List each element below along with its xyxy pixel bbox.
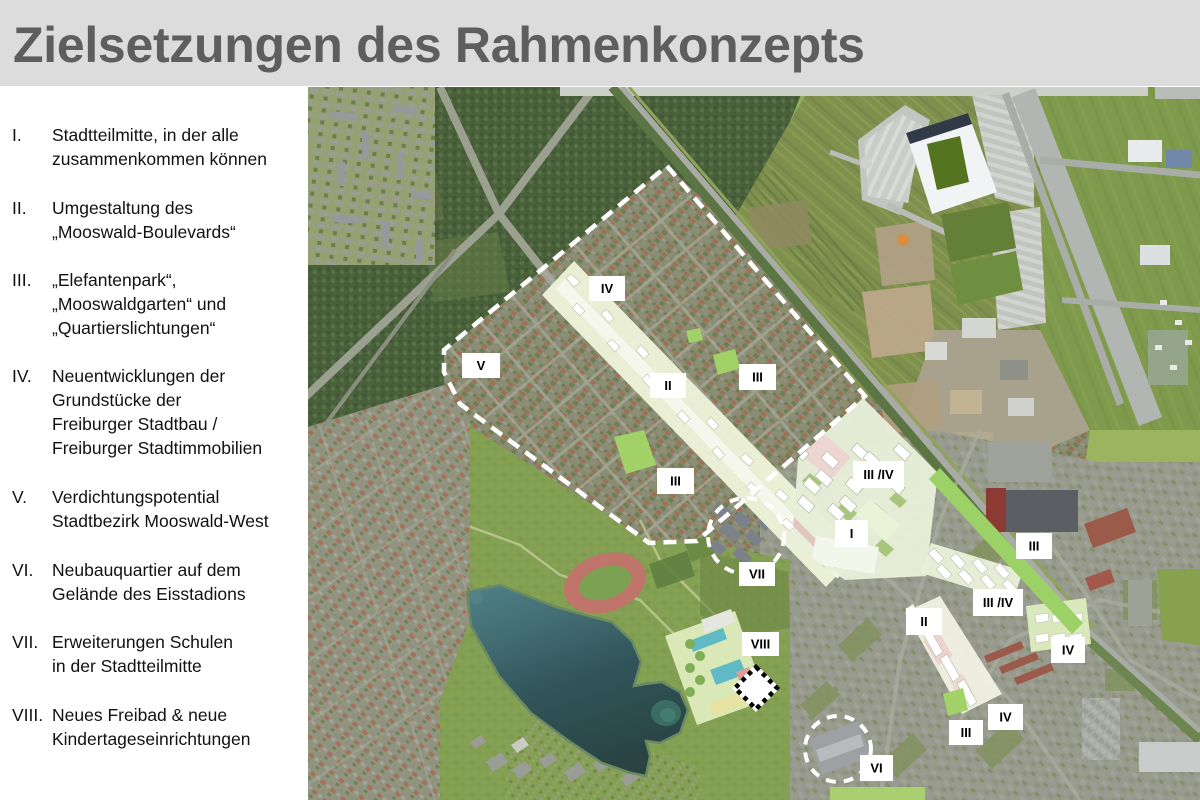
svg-text:II: II (920, 614, 927, 629)
svg-text:III: III (670, 474, 681, 489)
svg-text:III /IV: III /IV (863, 467, 894, 482)
svg-text:III: III (1029, 539, 1040, 554)
svg-text:IV: IV (999, 710, 1012, 725)
svg-text:VI: VI (870, 761, 882, 776)
svg-text:I: I (850, 526, 854, 541)
svg-text:IV: IV (601, 281, 614, 296)
svg-text:III: III (752, 370, 763, 385)
svg-text:II: II (664, 378, 671, 393)
svg-text:V: V (477, 358, 486, 373)
svg-text:VIII: VIII (751, 637, 771, 652)
svg-text:VII: VII (749, 567, 765, 582)
svg-text:III: III (961, 725, 972, 740)
svg-text:IV: IV (1062, 643, 1075, 658)
svg-text:III /IV: III /IV (983, 595, 1014, 610)
